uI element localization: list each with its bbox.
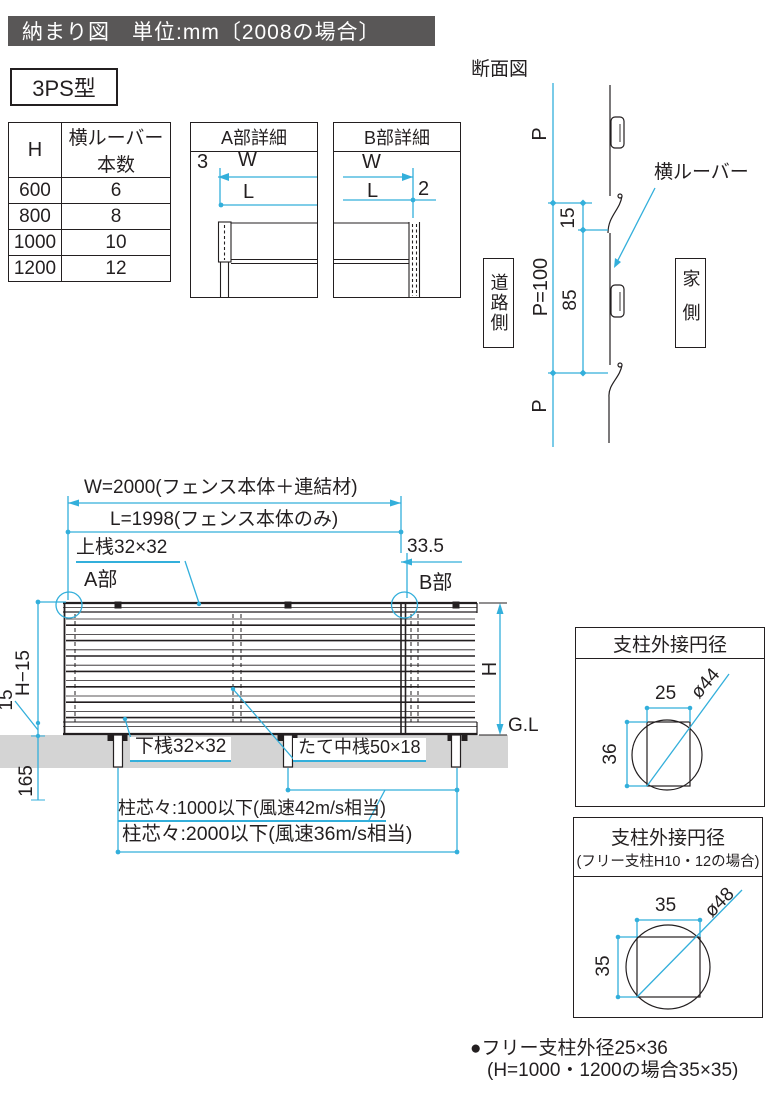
post2-dim-35h: 35 (594, 936, 614, 996)
section-dims (548, 83, 655, 447)
house-side-label: 家側 (675, 258, 706, 348)
section-dim-p-bottom: P (530, 376, 550, 436)
dim-l1998: L=1998(フェンス本体のみ) (110, 510, 338, 531)
footnote-line2: (H=1000・1200の場合35×35) (487, 1061, 738, 1082)
dim-w2000: W=2000(フェンス本体＋連結材) (84, 478, 358, 499)
spec-table: H 横ルーバー本数 600 6 800 8 1000 10 1200 12 (8, 122, 171, 282)
table-row: 600 6 (9, 178, 171, 204)
cell-h: 800 (9, 204, 62, 230)
detail-b-dim-l: L (367, 180, 378, 202)
span-1000-label: 柱芯々:1000以下(風速42m/s相当) (118, 799, 386, 822)
dim-h: H (480, 639, 500, 699)
dim-15: 15 (0, 680, 17, 720)
section-dim-p-top: P (530, 104, 550, 164)
detail-b-dim-2: 2 (418, 178, 429, 200)
cell-count: 8 (62, 204, 171, 230)
table-row: 800 8 (9, 204, 171, 230)
detail-b-dim-w: W (362, 151, 381, 173)
post-box-2-subtitle: (フリー支柱H10・12の場合) (577, 850, 760, 871)
section-dim-15: 15 (559, 188, 579, 248)
spec-table-header-count: 横ルーバー本数 (62, 123, 171, 178)
cell-h: 1000 (9, 230, 62, 256)
detail-a-dim-l: L (243, 181, 254, 203)
top-rail-label: 上桟32×32 (76, 538, 180, 563)
detail-a-title: A部詳細 (191, 123, 317, 152)
section-dim-85: 85 (561, 270, 581, 330)
house-side-text: 家側 (678, 269, 704, 337)
ground-strip (0, 735, 508, 768)
cell-count: 6 (62, 178, 171, 204)
louver-callout: 横ルーバー (654, 163, 749, 184)
section-title: 断面図 (471, 60, 528, 81)
section-drawing (608, 85, 624, 443)
detail-a-dim-3: 3 (197, 151, 208, 173)
road-side-label: 道路側 (483, 258, 514, 348)
post-box-2-title-area: 支柱外接円径 (フリー支柱H10・12の場合) (574, 818, 762, 877)
post1-dim-25: 25 (655, 684, 676, 705)
road-side-text: 道路側 (486, 273, 512, 333)
post1-dim-36: 36 (601, 724, 621, 784)
table-row: 1200 12 (9, 256, 171, 282)
part-b-label: B部 (419, 572, 452, 594)
model-label: 3PS型 (10, 68, 118, 106)
mid-rail-label: たて中桟50×18 (293, 738, 426, 762)
part-a-label: A部 (84, 569, 117, 591)
gl-label: G.L (508, 716, 539, 737)
dim-335: 33.5 (407, 537, 444, 558)
footnote-line1: ●フリー支柱外径25×36 (470, 1039, 668, 1060)
span-2000-label: 柱芯々:2000以下(風速36m/s相当) (122, 824, 412, 845)
drawing-canvas: 納まり図 単位:mm〔2008の場合〕 3PS型 H 横ルーバー本数 600 6… (0, 0, 771, 1106)
page-title: 納まり図 単位:mm〔2008の場合〕 (8, 16, 435, 46)
spec-table-header-h: H (9, 123, 62, 178)
post2-dim-35w: 35 (655, 896, 676, 917)
section-dim-p100: P=100 (531, 247, 551, 327)
cell-h: 1200 (9, 256, 62, 282)
post-box-2-title: 支柱外接円径 (611, 823, 725, 850)
bottom-rail-label: 下桟32×32 (130, 737, 231, 762)
post-box-1-title: 支柱外接円径 (576, 628, 764, 659)
detail-a-dim-w: W (238, 149, 257, 171)
cell-count: 12 (62, 256, 171, 282)
cell-count: 10 (62, 230, 171, 256)
detail-b-box: B部詳細 (333, 122, 461, 298)
cell-h: 600 (9, 178, 62, 204)
detail-b-title: B部詳細 (334, 123, 460, 152)
dim-165: 165 (17, 751, 37, 811)
table-row: 1000 10 (9, 230, 171, 256)
